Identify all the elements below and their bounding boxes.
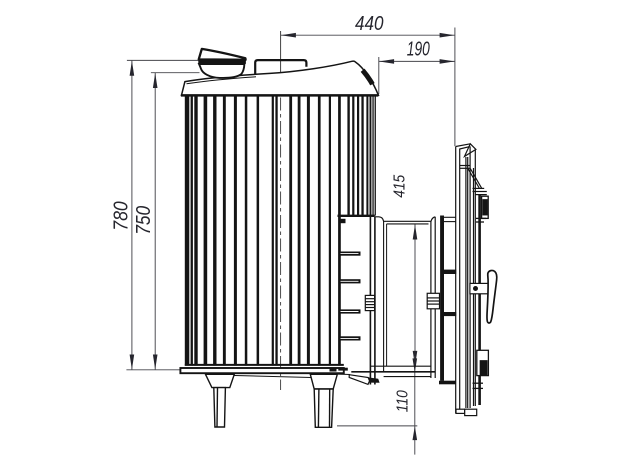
svg-text:440: 440 <box>355 13 384 35</box>
svg-text:415: 415 <box>392 174 409 197</box>
svg-text:750: 750 <box>133 206 155 235</box>
svg-text:110: 110 <box>395 390 412 412</box>
svg-text:190: 190 <box>407 39 430 61</box>
svg-text:780: 780 <box>110 201 132 231</box>
